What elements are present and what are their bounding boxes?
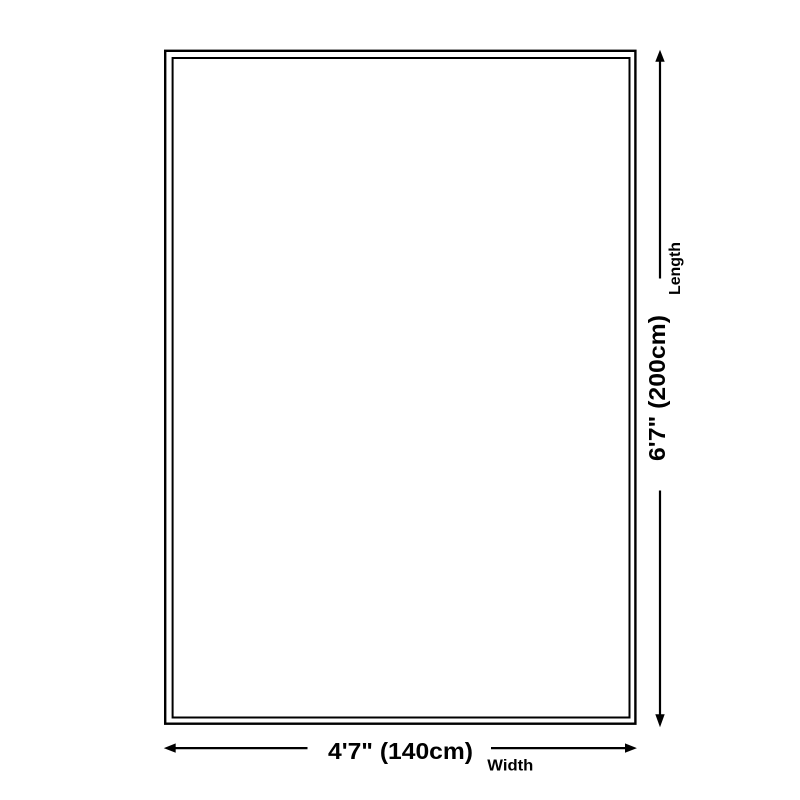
svg-text:6'7" (200cm): 6'7" (200cm) bbox=[644, 315, 670, 461]
svg-text:Length: Length bbox=[667, 242, 684, 295]
svg-text:Width: Width bbox=[487, 757, 533, 774]
svg-text:4'7" (140cm): 4'7" (140cm) bbox=[328, 738, 473, 764]
